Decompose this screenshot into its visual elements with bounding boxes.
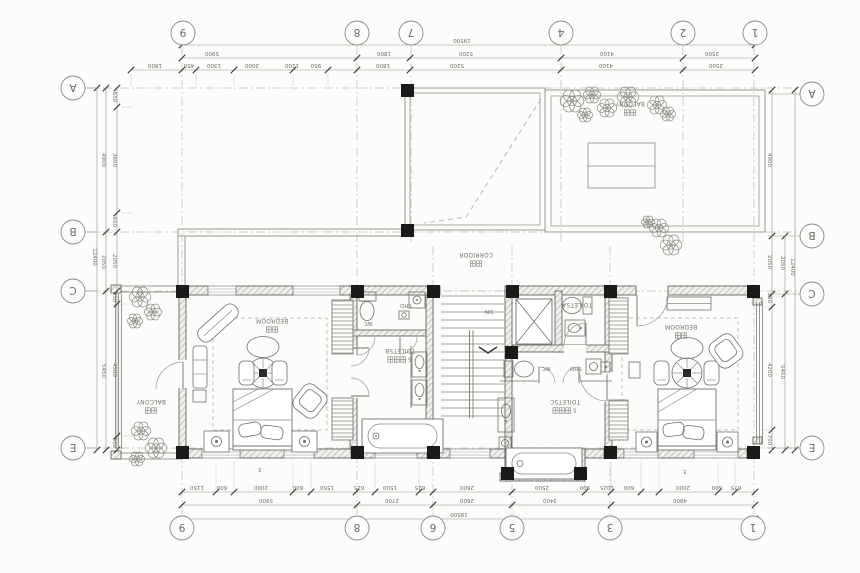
column <box>604 285 617 298</box>
ottoman-center <box>683 369 691 377</box>
grid-bubble-label: C <box>69 284 76 296</box>
grid-bubble-label: 2 <box>680 26 687 38</box>
grid-bubble-9: 9 <box>170 516 194 540</box>
grid-bubble-A: A <box>61 76 85 100</box>
chair <box>704 361 719 385</box>
dim-label: 2000 <box>676 484 690 490</box>
grid-bubble-1: 1 <box>741 516 765 540</box>
window <box>450 449 490 458</box>
wall <box>616 449 624 458</box>
grid-bubble-label: A <box>808 87 816 99</box>
dim-label: 4200 <box>766 363 772 377</box>
grid-bubble-label: 1 <box>752 26 759 38</box>
elevator-shaft <box>516 299 552 344</box>
dim-label: 500 <box>111 438 117 449</box>
grid-bubble-label: 7 <box>408 26 415 38</box>
wardrobe <box>609 298 628 354</box>
dim-label: 12400 <box>789 258 795 276</box>
grid-bubble-8: 8 <box>345 21 369 45</box>
column <box>351 285 364 298</box>
room-label-text: CORRIDOR <box>459 251 493 257</box>
dim-label: 1300 <box>207 62 221 68</box>
column <box>351 446 364 459</box>
grid-bubble-6: 6 <box>421 516 445 540</box>
tub-drain-dot <box>375 435 377 437</box>
nightstand-left <box>292 431 317 452</box>
column <box>604 446 617 459</box>
floor-plan-page: 1950059001800520041002500180045013002000… <box>0 0 860 573</box>
lamp-dot <box>215 440 218 443</box>
dim-label: 1200 <box>285 62 299 68</box>
room-label-toilet-5a: TOILET5A <box>562 301 593 307</box>
grid-bubble-9: 9 <box>171 21 195 45</box>
fixture-label: SHO <box>400 302 412 308</box>
dim-label: 625 <box>414 484 425 490</box>
dim-label: 19500 <box>453 37 471 43</box>
tap <box>419 370 421 372</box>
grid-bubble-E: E <box>800 436 824 460</box>
dim-label: 2500 <box>709 62 723 68</box>
dim-label: 4900 <box>766 153 772 167</box>
dim-label: 2000 <box>254 484 268 490</box>
wardrobe <box>332 300 353 354</box>
fixture-label: 3 <box>258 466 261 472</box>
column <box>501 467 514 480</box>
chair-left <box>272 361 287 385</box>
grid-bubble-5: 5 <box>500 516 524 540</box>
dim-label: 12400 <box>91 248 97 266</box>
grid-bubble-label: E <box>809 441 816 453</box>
dim-label: 600 <box>711 484 722 490</box>
grid-bubble-label: 8 <box>354 521 361 533</box>
dim-label: 4100 <box>599 62 613 68</box>
bed-frame <box>658 389 716 450</box>
wall <box>490 449 505 458</box>
grid-bubble-4: 4 <box>549 21 573 45</box>
dim-label: 2700 <box>385 497 399 503</box>
dim-label: 1800 <box>148 62 162 68</box>
lamp-dot <box>645 441 648 444</box>
dim-label: 600 <box>623 484 634 490</box>
fixture-label: WC <box>363 320 372 326</box>
dim-label: 700 <box>766 435 772 446</box>
column <box>427 446 440 459</box>
dim-label: 2050 <box>100 255 106 269</box>
grid-bubble-8: 8 <box>345 516 369 540</box>
wardrobe <box>609 400 628 440</box>
grid-bubble-A: A <box>800 82 824 106</box>
tap <box>419 398 421 400</box>
dim-label: 5450 <box>779 365 785 379</box>
wall <box>314 449 351 458</box>
wardrobe <box>332 398 353 440</box>
dim-label: 650 <box>111 217 117 228</box>
grid-bubble-label: 1 <box>750 521 757 533</box>
dim-label: 4900 <box>100 153 106 167</box>
grid-bubble-1: 1 <box>743 21 767 45</box>
room-label-cjk: 5 <box>573 407 576 413</box>
column <box>176 446 189 459</box>
tap <box>580 327 582 329</box>
column <box>401 84 414 97</box>
grid-bubble-B: B <box>61 220 85 244</box>
grid-bubble-label: 9 <box>180 26 187 38</box>
dim-label: 5900 <box>259 497 273 503</box>
grid-bubble-label: E <box>70 441 77 453</box>
dim-label: 600 <box>292 484 303 490</box>
tap <box>505 420 507 422</box>
bed-left <box>233 389 292 450</box>
grid-bubble-7: 7 <box>399 21 423 45</box>
chair <box>239 361 254 385</box>
chair <box>272 361 287 385</box>
dim-label: 450 <box>183 62 194 68</box>
grid-bubble-2: 2 <box>671 21 695 45</box>
room-label-text: TOILET5C <box>550 398 581 404</box>
fixture-label: WC <box>541 365 550 371</box>
grid-bubble-label: C <box>808 287 815 299</box>
dim-label: 5200 <box>459 50 473 56</box>
dim-label: 2500 <box>535 484 549 490</box>
grid-bubble-C: C <box>61 279 85 303</box>
dim-label: 3400 <box>543 497 557 503</box>
ottoman-center <box>259 369 267 377</box>
wall <box>111 451 121 459</box>
dim-label: 1800 <box>376 62 390 68</box>
chair-left <box>239 361 254 385</box>
dim-label: 5900 <box>205 50 219 56</box>
grid-bubble-label: 3 <box>607 521 614 533</box>
door-opening <box>178 360 187 388</box>
fixture-label: SHO <box>570 365 582 371</box>
dim-label: 2600 <box>460 497 474 503</box>
bathtub-right <box>506 448 582 479</box>
chair-right <box>704 361 719 385</box>
nightstand-right <box>636 432 657 452</box>
dim-label: 900 <box>579 484 590 490</box>
chair <box>654 361 669 385</box>
nightstand-right <box>717 432 738 452</box>
dim-label: 4900 <box>673 497 687 503</box>
dim-label: 550 <box>766 293 772 304</box>
dim-label: 950 <box>310 62 321 68</box>
grid-bubble-label: 9 <box>179 521 186 533</box>
grid-bubble-label: 6 <box>429 521 436 533</box>
dim-label: 1025 <box>600 484 614 490</box>
wall <box>668 286 753 295</box>
dim-label: 2600 <box>460 484 474 490</box>
dim-label: 1800 <box>377 50 391 56</box>
door-opening <box>564 345 586 353</box>
chair-right <box>654 361 669 385</box>
dim-label: 675 <box>730 484 741 490</box>
bed-right <box>658 389 716 450</box>
room-label-text: TOILET5B <box>385 347 416 353</box>
column <box>747 285 760 298</box>
grid-bubble-label: B <box>69 225 76 237</box>
column <box>747 446 760 459</box>
door-opening <box>604 372 613 402</box>
dim-label: 2500 <box>705 50 719 56</box>
lamp-dot <box>726 441 729 444</box>
dim-label: 4500 <box>111 363 117 377</box>
grid-bubble-C: C <box>800 282 824 306</box>
room-label-cjk: 5 <box>408 356 411 362</box>
bed-frame <box>233 389 292 450</box>
dim-label: 600 <box>216 484 227 490</box>
fixture-label: DN <box>485 308 493 314</box>
wall <box>188 449 202 458</box>
shower-drain-dot <box>416 299 418 301</box>
wall <box>753 437 762 444</box>
column <box>505 346 518 359</box>
column <box>401 224 414 237</box>
grid-bubble-B: B <box>800 224 824 248</box>
room-label-text: BEDROOM <box>665 323 697 329</box>
window <box>293 286 340 295</box>
knob <box>604 366 606 368</box>
floor-plan-drawing: 1950059001800520041002500180045013002000… <box>0 0 860 573</box>
grid-bubble-E: E <box>61 436 85 460</box>
column <box>427 285 440 298</box>
dim-label: 2050 <box>779 256 785 270</box>
grid-bubble-label: B <box>808 229 815 241</box>
wall <box>585 449 604 458</box>
dim-label: 3600 <box>111 153 117 167</box>
room-label-text: BALCONY <box>136 398 166 404</box>
sofa <box>193 346 207 388</box>
dim-label: 2050 <box>111 254 117 268</box>
dim-label: 450 <box>111 292 117 303</box>
room-label-text: TOILET5A <box>562 301 593 307</box>
grid-bubble-label: 8 <box>354 26 361 38</box>
wall <box>352 330 426 336</box>
dim-label: 19500 <box>450 511 468 517</box>
dim-label: 1150 <box>190 484 204 490</box>
column <box>176 285 189 298</box>
wall <box>738 449 747 458</box>
grid-bubble-label: 4 <box>557 26 564 38</box>
dim-label: 5200 <box>450 62 464 68</box>
wall <box>555 291 562 352</box>
wall <box>512 345 612 352</box>
dim-label: 5450 <box>100 364 106 378</box>
room-label-text: BEDROOM <box>256 317 288 323</box>
wall <box>753 298 762 305</box>
dim-label: 650 <box>111 92 117 103</box>
window <box>208 286 236 295</box>
grid-bubble-label: 5 <box>509 521 516 533</box>
dim-label: 4100 <box>600 50 614 56</box>
nightstand-left <box>204 431 229 452</box>
dim-label: 1500 <box>383 484 397 490</box>
lamp-dot <box>303 440 306 443</box>
dim-label: 625 <box>353 484 364 490</box>
room-label-text: BALCONY <box>615 100 645 106</box>
wall <box>236 286 293 295</box>
dim-label: 2050 <box>766 255 772 269</box>
grid-bubble-label: A <box>69 81 77 93</box>
column <box>506 285 519 298</box>
dim-label: 1550 <box>320 484 334 490</box>
column <box>574 467 587 480</box>
fixture-label: 3 <box>683 468 686 474</box>
dim-label: 2000 <box>245 62 259 68</box>
ottoman-right <box>672 358 702 388</box>
grid-bubble-3: 3 <box>598 516 622 540</box>
